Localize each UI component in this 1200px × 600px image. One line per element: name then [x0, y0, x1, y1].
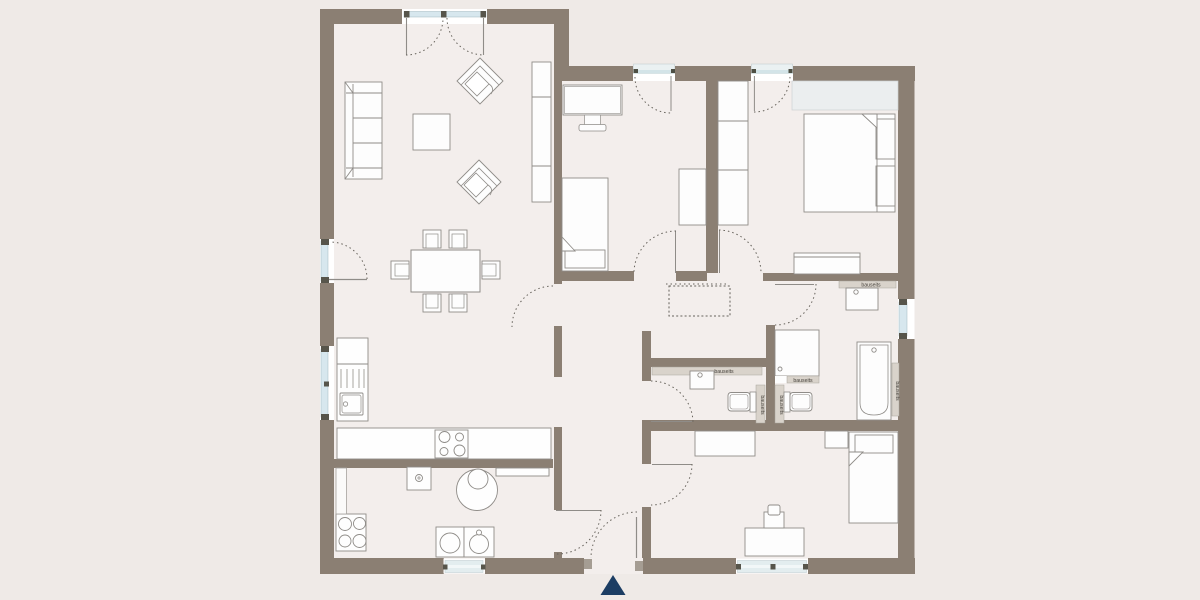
- svg-text:bauseits: bauseits: [759, 395, 765, 415]
- svg-text:bauseits: bauseits: [714, 369, 734, 375]
- svg-text:bauseits: bauseits: [894, 381, 900, 401]
- svg-text:bauseits: bauseits: [793, 378, 813, 384]
- svg-text:bauseits: bauseits: [778, 395, 784, 415]
